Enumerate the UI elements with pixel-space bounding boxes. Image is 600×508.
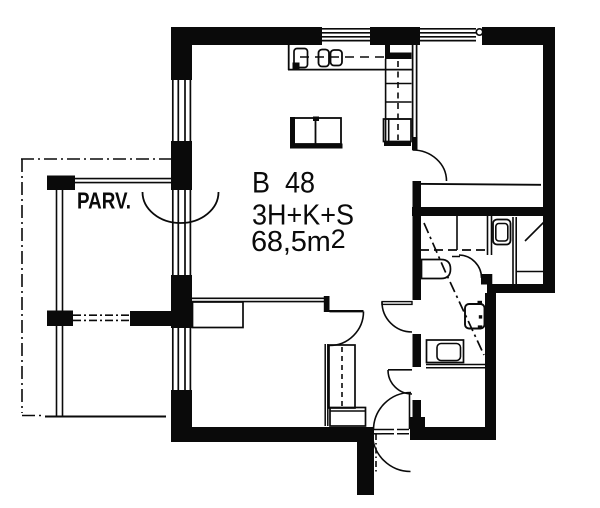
svg-text:68,5m2: 68,5m2 (251, 224, 345, 258)
svg-text:PARV.: PARV. (77, 188, 131, 214)
svg-text:B 48: B 48 (252, 166, 315, 199)
